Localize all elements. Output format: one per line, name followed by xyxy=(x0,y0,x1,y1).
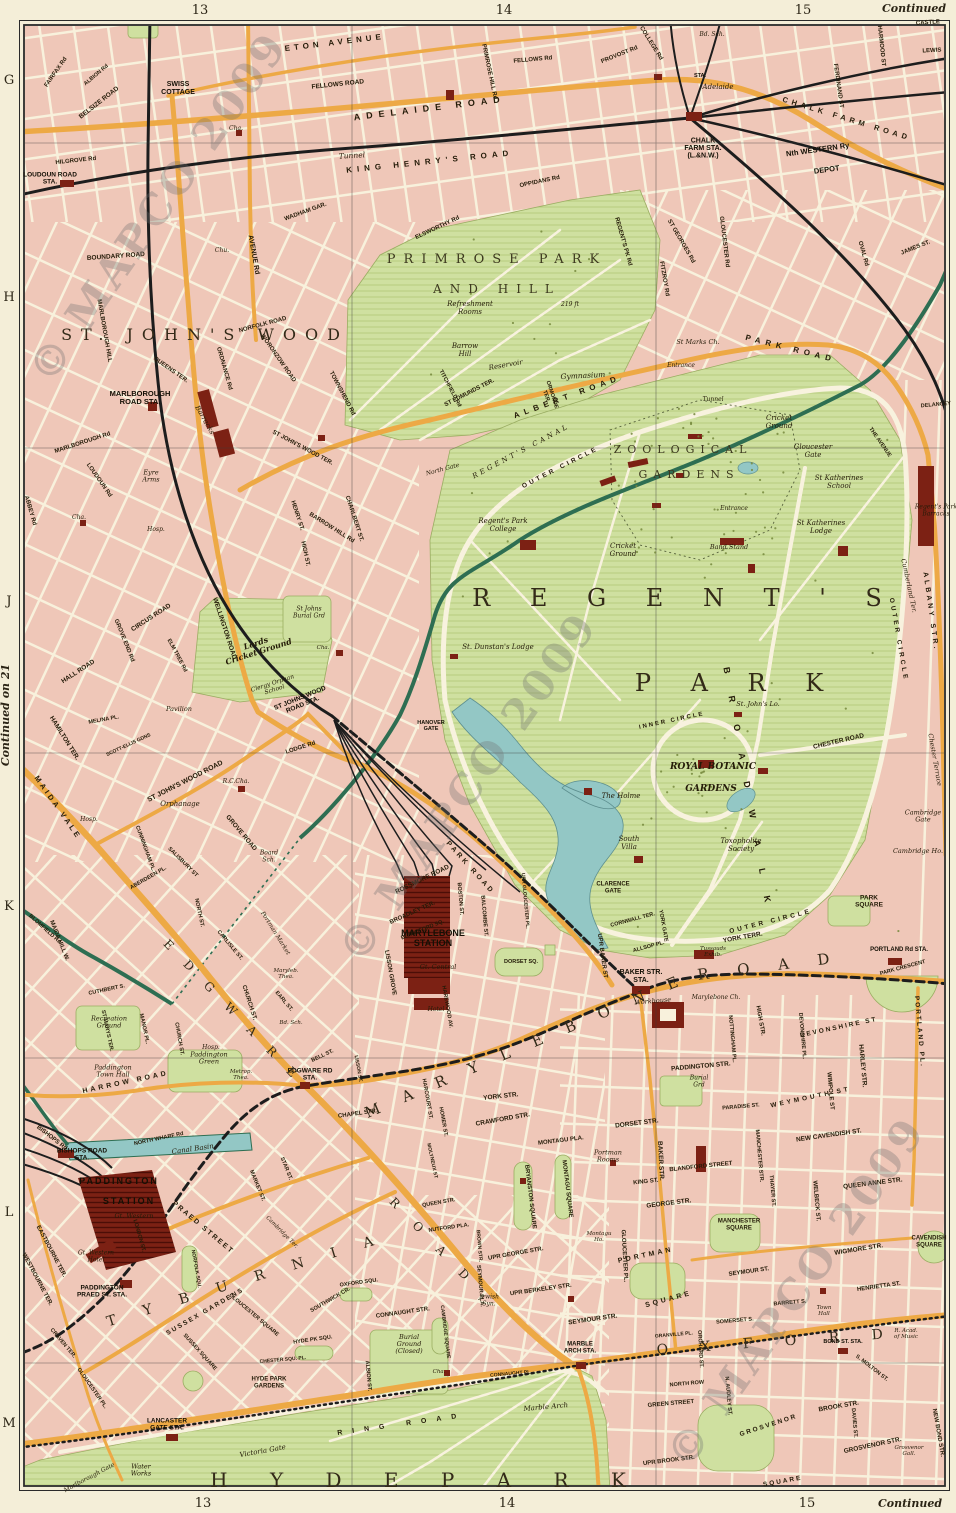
tree-dot xyxy=(666,791,668,793)
map-label: DORSET SQ. xyxy=(504,959,538,965)
tree-dot xyxy=(710,563,712,565)
map-canvas: ETON AVENUEFELLOWS ROADFELLOWS RdADELAID… xyxy=(0,0,956,1513)
grid-letter-left: K xyxy=(4,899,14,914)
tree-dot xyxy=(690,423,692,425)
tree-dot xyxy=(724,737,726,739)
map-label: STA. xyxy=(694,73,707,79)
map-label: CricketGround xyxy=(766,414,793,430)
tree-dot xyxy=(640,528,642,530)
map-label: BoardSch. xyxy=(259,850,278,864)
map-label: H Y D E P A R K xyxy=(210,1468,644,1492)
tree-dot xyxy=(746,730,748,732)
tree-dot xyxy=(717,509,719,511)
map-label: Marylebone Ch. xyxy=(691,994,741,1001)
tree-dot xyxy=(755,531,757,533)
map-label: Cambridge Ho. xyxy=(893,847,943,855)
map-label: St JohnsBurial Grd xyxy=(292,606,325,620)
map-label: Hosp. xyxy=(146,526,165,533)
tree-dot xyxy=(872,652,874,654)
tree-dot xyxy=(704,577,706,579)
grid-letter-left: M xyxy=(2,1416,15,1431)
map-label: EyreArms xyxy=(141,468,160,483)
tree-dot xyxy=(776,433,778,435)
tree-dot xyxy=(654,551,656,553)
tree-dot xyxy=(732,530,734,532)
tree-dot xyxy=(712,437,714,439)
tree-dot xyxy=(782,471,784,473)
map-label: Entrance xyxy=(719,505,748,512)
map-label: PORTLAND Rd STA. xyxy=(870,947,928,953)
tree-dot xyxy=(638,546,640,548)
map-label: LANCASTERGATE STA. xyxy=(147,1417,187,1431)
continued-note-bottom: Continued xyxy=(878,1497,942,1510)
map-label: 219 ft xyxy=(560,301,580,308)
tree-dot xyxy=(489,552,491,554)
tree-dot xyxy=(762,491,764,493)
tree-dot xyxy=(698,775,700,777)
grid-letter-left: L xyxy=(5,1205,14,1220)
map-label: R E G E N T ' S xyxy=(472,584,898,612)
tree-dot xyxy=(549,323,551,325)
map-label: Band Stand xyxy=(709,543,748,551)
map-label: P A R K xyxy=(635,669,839,697)
tree-dot xyxy=(697,435,699,437)
map-label: The Holme xyxy=(602,792,641,800)
tree-dot xyxy=(634,480,636,482)
tree-dot xyxy=(618,484,620,486)
tree-dot xyxy=(635,485,637,487)
map-label: St. Dunstan's Lodge xyxy=(462,643,533,651)
map-label: Chu. xyxy=(215,247,229,254)
map-label: Gt. Central xyxy=(420,963,457,971)
map-label: St. John's Lo. xyxy=(736,700,779,708)
grid-number-bottom: 15 xyxy=(799,1496,816,1511)
tree-dot xyxy=(775,889,777,891)
grid-number-bottom: 14 xyxy=(499,1496,516,1511)
map-label: GARDENS xyxy=(638,468,739,481)
tree-dot xyxy=(574,270,576,272)
grid-number-bottom: 13 xyxy=(195,1496,212,1511)
tree-dot xyxy=(762,553,764,555)
tree-dot xyxy=(701,795,703,797)
map-label: PaddingtonTown Hall xyxy=(93,1063,131,1078)
workhouse-block xyxy=(652,1002,684,1028)
map-label: Cha. xyxy=(72,514,86,521)
tree-dot xyxy=(771,537,773,539)
tree-dot xyxy=(730,461,732,463)
tree-dot xyxy=(706,811,708,813)
tree-dot xyxy=(676,754,678,756)
tree-dot xyxy=(723,533,725,535)
map-sheet: ETON AVENUEFELLOWS ROADFELLOWS RdADELAID… xyxy=(0,0,956,1513)
tree-dot xyxy=(814,579,816,581)
map-label: Tunnel xyxy=(338,150,365,160)
map-label: SouthVilla xyxy=(619,835,640,851)
tree-dot xyxy=(471,492,473,494)
tree-dot xyxy=(650,817,652,819)
tree-dot xyxy=(555,352,557,354)
tree-dot xyxy=(707,431,709,433)
tree-dot xyxy=(783,431,785,433)
map-label: HYDE PARKGARDENS xyxy=(252,1377,288,1390)
tree-dot xyxy=(774,527,776,529)
map-label: Cha. xyxy=(433,1369,446,1375)
map-label: PADDINGTONPRAED ST. STA. xyxy=(77,1284,127,1298)
tree-dot xyxy=(701,435,703,437)
grid-number-top: 15 xyxy=(795,3,812,18)
tree-dot xyxy=(713,508,715,510)
tree-dot xyxy=(637,926,639,928)
tree-dot xyxy=(751,469,753,471)
map-label: CAVENDISHSQUARE xyxy=(912,1236,947,1249)
tree-dot xyxy=(609,372,611,374)
map-label: ZOOLOGICAL xyxy=(614,443,753,456)
map-label: PRIMROSE PARK xyxy=(387,252,607,267)
tree-dot xyxy=(759,479,761,481)
continued-note-top: Continued xyxy=(882,2,946,15)
map-label: R. Acad.of Music xyxy=(893,1328,918,1340)
tree-dot xyxy=(751,462,753,464)
map-label: R.C.Cha. xyxy=(222,778,250,785)
grid-number-top: 14 xyxy=(496,3,513,18)
map-label: LEWIS xyxy=(922,48,941,55)
tree-dot xyxy=(678,408,680,410)
tree-dot xyxy=(671,536,673,538)
continued-note-left: Continued on 21 xyxy=(0,664,12,766)
map-label: Adelaide xyxy=(702,83,734,91)
grid-letter-left: J xyxy=(4,594,11,609)
tree-dot xyxy=(725,552,727,554)
tree-dot xyxy=(897,930,899,932)
tree-dot xyxy=(473,238,475,240)
map-label: TownHall xyxy=(817,1305,832,1317)
tree-dot xyxy=(682,427,684,429)
map-label: STATION xyxy=(103,1196,155,1206)
tree-dot xyxy=(533,338,535,340)
map-label: Orphanage xyxy=(160,800,200,808)
map-label: Pavilion xyxy=(165,705,192,713)
tree-dot xyxy=(430,373,432,375)
map-label: St Marks Ch. xyxy=(676,338,719,346)
tree-dot xyxy=(764,526,766,528)
grid-letter-left: H xyxy=(3,290,14,305)
tree-dot xyxy=(693,413,695,415)
tree-dot xyxy=(673,786,675,788)
map-label: BurialGround(Closed) xyxy=(395,1333,423,1355)
map-label: PADDINGTON xyxy=(79,1176,159,1186)
map-label: CricketGround xyxy=(610,542,637,558)
tree-dot xyxy=(740,808,742,810)
tree-dot xyxy=(653,508,655,510)
map-label: GARDENS xyxy=(685,784,737,794)
map-label: BOND ST. STA. xyxy=(823,1339,863,1345)
map-label: AND HILL xyxy=(432,282,561,296)
map-label: Hosp. xyxy=(79,816,98,823)
map-label: Cha. xyxy=(317,645,330,651)
tree-dot xyxy=(631,433,633,435)
tree-dot xyxy=(692,758,694,760)
tree-dot xyxy=(642,824,644,826)
tree-dot xyxy=(845,708,847,710)
map-label: Tunnel xyxy=(702,396,723,403)
map-label: Entrance xyxy=(666,362,695,369)
tree-dot xyxy=(507,540,509,542)
tree-dot xyxy=(462,595,464,597)
map-label: Hotel xyxy=(427,1006,445,1013)
tree-dot xyxy=(715,418,717,420)
tree-dot xyxy=(512,322,514,324)
map-label: PortmanRooms xyxy=(593,1148,622,1163)
tree-dot xyxy=(691,773,693,775)
tree-dot xyxy=(735,512,737,514)
map-label: MARBLEARCH STA. xyxy=(564,1342,597,1355)
tree-dot xyxy=(657,417,659,419)
tree-dot xyxy=(886,439,888,441)
map-label: WaterWorks xyxy=(131,1462,152,1477)
tree-dot xyxy=(745,493,747,495)
map-label: Bd. Sch. xyxy=(278,1020,302,1026)
tree-dot xyxy=(725,827,727,829)
tree-dot xyxy=(540,230,542,232)
map-label: Bd. Sch. xyxy=(698,31,724,38)
grid-number-top: 13 xyxy=(192,3,209,18)
tree-dot xyxy=(660,770,662,772)
grid-letter-left: G xyxy=(4,73,14,88)
